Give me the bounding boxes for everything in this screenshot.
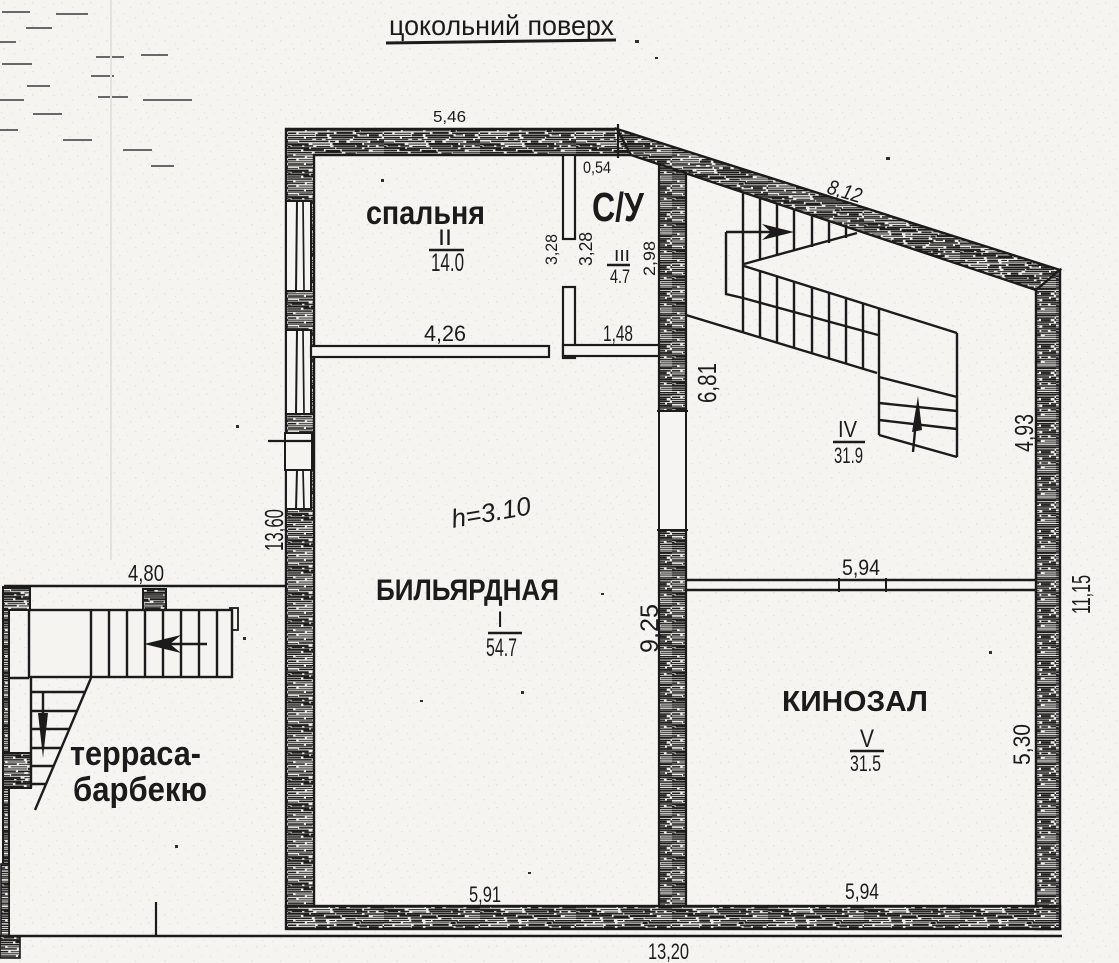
svg-text:КИНОЗАЛ: КИНОЗАЛ	[782, 686, 928, 718]
svg-text:13,60: 13,60	[259, 509, 289, 551]
svg-text:5,46: 5,46	[433, 109, 466, 126]
svg-text:4,26: 4,26	[424, 321, 466, 346]
svg-text:V: V	[860, 725, 874, 753]
svg-text:5,91: 5,91	[469, 882, 501, 907]
svg-text:0,54: 0,54	[583, 158, 611, 177]
svg-text:спальня: спальня	[366, 194, 485, 231]
svg-text:5,94: 5,94	[845, 879, 879, 904]
svg-text:цокольний поверх: цокольний поверх	[389, 10, 614, 41]
svg-text:9,25: 9,25	[636, 604, 664, 653]
svg-text:4.7: 4.7	[610, 267, 630, 288]
svg-text:31.9: 31.9	[834, 443, 863, 468]
svg-text:I: I	[497, 607, 503, 632]
svg-text:11,15: 11,15	[1066, 575, 1096, 614]
svg-text:3,28: 3,28	[576, 232, 596, 266]
svg-text:С/У: С/У	[592, 184, 644, 230]
svg-text:3,28: 3,28	[542, 234, 561, 265]
svg-text:6,81: 6,81	[692, 363, 722, 403]
svg-text:4,80: 4,80	[128, 560, 164, 586]
svg-text:II: II	[438, 225, 452, 250]
svg-text:5,94: 5,94	[842, 555, 880, 580]
svg-text:13,20: 13,20	[648, 939, 689, 963]
svg-text:31.5: 31.5	[850, 751, 881, 776]
svg-text:III: III	[614, 248, 630, 265]
svg-text:5,30: 5,30	[1009, 724, 1036, 765]
svg-text:14.0: 14.0	[431, 249, 464, 277]
svg-text:2,98: 2,98	[640, 241, 659, 276]
svg-text:4,93: 4,93	[1009, 414, 1039, 452]
svg-text:барбекю: барбекю	[73, 771, 207, 809]
svg-text:БИЛЬЯРДНАЯ: БИЛЬЯРДНАЯ	[376, 574, 559, 607]
svg-text:терраса-: терраса-	[70, 735, 201, 773]
svg-text:1,48: 1,48	[603, 321, 633, 346]
svg-text:54.7: 54.7	[486, 634, 517, 662]
svg-text:IV: IV	[838, 416, 858, 442]
